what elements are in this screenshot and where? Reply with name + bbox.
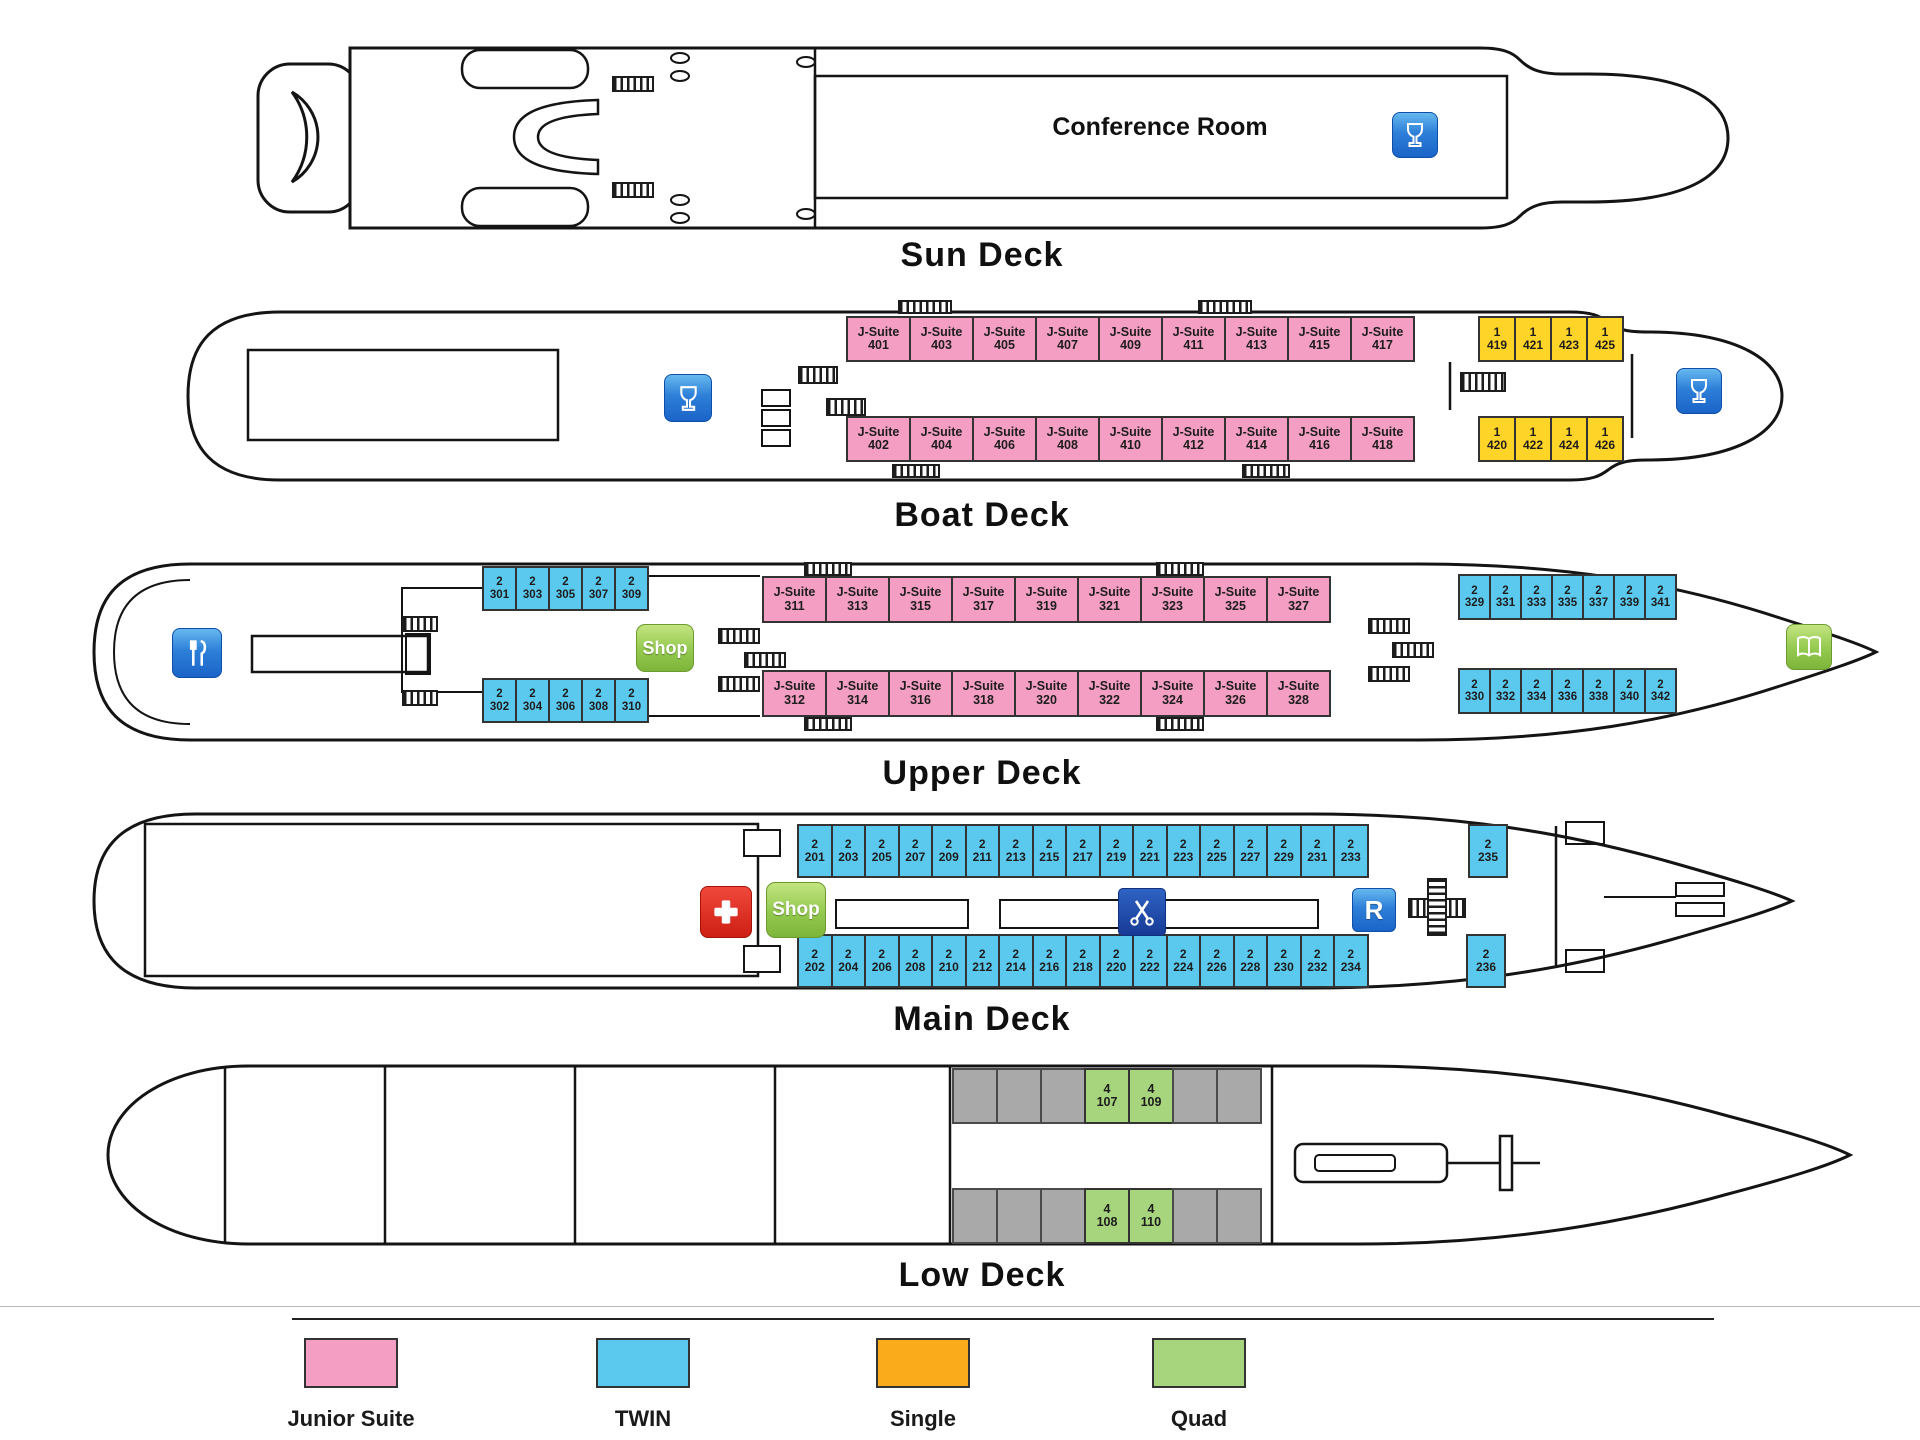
cabin-number: 412 (1183, 439, 1204, 452)
cabin[interactable] (1040, 1188, 1086, 1244)
cabin-number: 314 (847, 694, 868, 707)
cabin[interactable]: 2 233 (1333, 824, 1369, 878)
cabin[interactable]: 2 201 (797, 824, 833, 878)
cabin-number: 337 (1589, 597, 1608, 609)
cabin[interactable]: 2 215 (1032, 824, 1068, 878)
cabin-type: 2 (1564, 585, 1570, 597)
cabin-number: 213 (1006, 851, 1026, 864)
cabin[interactable]: 2 203 (831, 824, 867, 878)
cabin[interactable]: 2 218 (1065, 934, 1101, 988)
cabin-number: 221 (1140, 851, 1160, 864)
cabin[interactable]: J-Suite 313 (825, 576, 890, 623)
restaurant-icon (172, 628, 222, 678)
cabin-number: 328 (1288, 694, 1309, 707)
cabin[interactable]: 2 225 (1199, 824, 1235, 878)
cabin[interactable]: 2 304 (515, 678, 550, 723)
cabin[interactable]: J-Suite 401 (846, 316, 911, 362)
cabin-number: 319 (1036, 600, 1057, 613)
cabin[interactable]: 2 234 (1333, 934, 1369, 988)
cabin[interactable]: 2 332 (1489, 668, 1522, 714)
cabin-235[interactable]: 2 235 (1468, 824, 1508, 878)
cabin[interactable]: 2 339 (1613, 574, 1646, 620)
cabin[interactable]: J-Suite 312 (762, 670, 827, 717)
main-deck-twin-row-bottom: 2 202 2 204 2 206 2 208 2 210 2 212 2 21… (797, 934, 1369, 988)
cabin-number: 331 (1496, 597, 1515, 609)
stairs-icon (1427, 878, 1447, 936)
cabin[interactable]: 2 229 (1266, 824, 1302, 878)
cabin[interactable]: 2 222 (1132, 934, 1168, 988)
library-book-icon (1786, 624, 1832, 670)
cabin[interactable]: 2 224 (1166, 934, 1202, 988)
cabin-type: 2 (562, 576, 568, 588)
cabin-number: 404 (931, 439, 952, 452)
cabin[interactable]: J-Suite 318 (951, 670, 1016, 717)
cabin-number: 207 (905, 851, 925, 864)
cabin[interactable]: 4 109 (1128, 1068, 1174, 1124)
cabin-type: 2 (529, 576, 535, 588)
legend-divider (292, 1318, 1714, 1320)
cabin[interactable]: 1 426 (1586, 416, 1624, 462)
bar-icon (1676, 368, 1722, 414)
cabin-type: J-Suite (900, 586, 942, 599)
cabin[interactable]: 2 219 (1099, 824, 1135, 878)
cabin-number: 322 (1099, 694, 1120, 707)
cabin[interactable]: 2 301 (482, 566, 517, 611)
cabin-type: J-Suite (963, 586, 1005, 599)
cabin[interactable]: 2 308 (581, 678, 616, 723)
cabin-type: J-Suite (1152, 586, 1194, 599)
stairs-icon (612, 182, 654, 198)
cabin[interactable]: 2 334 (1520, 668, 1553, 714)
cabin[interactable]: 2 342 (1644, 668, 1677, 714)
cabin[interactable]: 2 337 (1582, 574, 1615, 620)
upper-deck-twin-fwd-row-top: 2 329 2 331 2 333 2 335 2 337 2 339 2 34… (1458, 574, 1677, 620)
cabin[interactable]: J-Suite 327 (1266, 576, 1331, 623)
cabin-number: 402 (868, 439, 889, 452)
cabin[interactable]: 2 231 (1300, 824, 1336, 878)
cabin[interactable]: 2 341 (1644, 574, 1677, 620)
cabin-type: J-Suite (1026, 586, 1068, 599)
cabin-type: 2 (1471, 679, 1477, 691)
cabin[interactable]: J-Suite 311 (762, 576, 827, 623)
cabin-number: 306 (556, 701, 575, 713)
cabin-number: 308 (589, 701, 608, 713)
stairs-icon (1198, 300, 1252, 314)
stairs-icon (1368, 618, 1410, 634)
cabin[interactable]: 2 211 (965, 824, 1001, 878)
stairs-icon (1368, 666, 1410, 682)
cabin[interactable] (1040, 1068, 1086, 1124)
cabin-number: 413 (1246, 339, 1267, 352)
low-deck-cell-row-bottom: 4 108 4 110 (952, 1188, 1262, 1244)
cabin[interactable]: J-Suite 323 (1140, 576, 1205, 623)
cabin-number: 236 (1476, 961, 1496, 974)
cabin-number: 223 (1173, 851, 1193, 864)
main-deck-label: Main Deck (632, 1000, 1332, 1039)
cabin[interactable]: J-Suite 316 (888, 670, 953, 717)
cabin[interactable]: J-Suite 408 (1035, 416, 1100, 462)
cabin[interactable]: 2 329 (1458, 574, 1491, 620)
cabin[interactable]: 1 425 (1586, 316, 1624, 362)
cabin[interactable] (1216, 1188, 1262, 1244)
cabin-number: 108 (1097, 1216, 1118, 1229)
cabin[interactable]: J-Suite 314 (825, 670, 890, 717)
boat-deck-single-row-top: 1 419 1 421 1 423 1 425 (1478, 316, 1624, 362)
bar-icon (664, 374, 712, 422)
cabin-number: 233 (1341, 851, 1361, 864)
cabin[interactable]: J-Suite 411 (1161, 316, 1226, 362)
cabin[interactable]: 2 216 (1032, 934, 1068, 988)
cabin[interactable]: 2 207 (898, 824, 934, 878)
cabin-number: 214 (1006, 961, 1026, 974)
cabin[interactable]: J-Suite 320 (1014, 670, 1079, 717)
cabin-type: 2 (1657, 679, 1663, 691)
sun-deck-label: Sun Deck (632, 236, 1332, 275)
legend-label: Quad (1171, 1406, 1227, 1432)
shop-label: Shop (643, 638, 688, 659)
cabin[interactable] (996, 1068, 1042, 1124)
cabin-number: 317 (973, 600, 994, 613)
cabin-type: 2 (595, 576, 601, 588)
cabin-number: 232 (1307, 961, 1327, 974)
cabin[interactable]: 2 226 (1199, 934, 1235, 988)
cabin-number: 415 (1309, 339, 1330, 352)
cabin-number: 420 (1487, 439, 1507, 452)
cabin-type: 2 (1502, 585, 1508, 597)
legend-label: Single (890, 1406, 956, 1432)
cabin[interactable]: 2 309 (614, 566, 649, 611)
cabin-type: J-Suite (900, 680, 942, 693)
cabin[interactable]: J-Suite 414 (1224, 416, 1289, 462)
cabin[interactable] (952, 1188, 998, 1244)
cabin[interactable]: 2 338 (1582, 668, 1615, 714)
cabin-number: 421 (1523, 339, 1543, 352)
cabin[interactable]: J-Suite 403 (909, 316, 974, 362)
cabin[interactable]: 1 422 (1514, 416, 1552, 462)
upper-deck-label: Upper Deck (632, 754, 1332, 793)
cabin-number: 414 (1246, 439, 1267, 452)
cabin[interactable] (1216, 1068, 1262, 1124)
boat-deck-jsuite-row-bottom: J-Suite 402 J-Suite 404 J-Suite 406 J-Su… (846, 416, 1415, 462)
cabin[interactable]: 1 421 (1514, 316, 1552, 362)
bar-icon (1392, 112, 1438, 158)
legend-label: Junior Suite (287, 1406, 414, 1432)
cabin[interactable]: J-Suite 315 (888, 576, 953, 623)
cabin-number: 304 (523, 701, 542, 713)
cabin[interactable]: 2 205 (864, 824, 900, 878)
cabin-number: 224 (1173, 961, 1193, 974)
cabin-number: 309 (622, 589, 641, 601)
cabin-number: 340 (1620, 691, 1639, 703)
cabin-number: 209 (939, 851, 959, 864)
stairs-icon (1392, 642, 1434, 658)
cabin-number: 342 (1651, 691, 1670, 703)
cabin-number: 208 (905, 961, 925, 974)
cabin[interactable]: 2 202 (797, 934, 833, 988)
cabin[interactable]: J-Suite 415 (1287, 316, 1352, 362)
cabin-number: 417 (1372, 339, 1393, 352)
cabin[interactable] (996, 1188, 1042, 1244)
stairs-icon (804, 717, 852, 731)
stairs-icon (612, 76, 654, 92)
main-deck-twin-row-top: 2 201 2 203 2 205 2 207 2 209 2 211 2 21… (797, 824, 1369, 878)
cabin-type: 2 (496, 688, 502, 700)
cabin-number: 407 (1057, 339, 1078, 352)
cabin[interactable]: 4 110 (1128, 1188, 1174, 1244)
cabin-number: 320 (1036, 694, 1057, 707)
cabin[interactable]: 4 108 (1084, 1188, 1130, 1244)
cabin[interactable]: J-Suite 405 (972, 316, 1037, 362)
cabin-type: J-Suite (1026, 680, 1068, 693)
cabin[interactable]: 1 419 (1478, 316, 1516, 362)
cabin-number: 409 (1120, 339, 1141, 352)
cabin[interactable]: J-Suite 407 (1035, 316, 1100, 362)
cabin-number: 211 (973, 851, 992, 864)
cabin-number: 418 (1372, 439, 1393, 452)
cabin-236[interactable]: 2 236 (1466, 934, 1506, 988)
cabin[interactable]: 2 213 (998, 824, 1034, 878)
cabin-number: 201 (805, 851, 825, 864)
cabin[interactable]: 2 228 (1233, 934, 1269, 988)
cabin-type: 2 (1626, 679, 1632, 691)
cabin[interactable] (1172, 1188, 1218, 1244)
cabin-type: J-Suite (1215, 680, 1257, 693)
cabin-number: 311 (784, 600, 804, 613)
cabin[interactable]: J-Suite 321 (1077, 576, 1142, 623)
legend-swatch (596, 1338, 690, 1388)
cabin-type: 2 (628, 576, 634, 588)
cabin-type: J-Suite (1278, 680, 1320, 693)
cabin-type: 2 (562, 688, 568, 700)
cabin-number: 228 (1240, 961, 1260, 974)
cabin[interactable]: J-Suite 324 (1140, 670, 1205, 717)
cabin-type: J-Suite (774, 586, 816, 599)
cabin-number: 107 (1097, 1096, 1118, 1109)
cabin[interactable]: J-Suite 402 (846, 416, 911, 462)
cabin[interactable]: J-Suite 328 (1266, 670, 1331, 717)
cabin-number: 338 (1589, 691, 1608, 703)
cabin-number: 315 (910, 600, 931, 613)
cabin-number: 405 (994, 339, 1015, 352)
cabin[interactable]: 2 227 (1233, 824, 1269, 878)
cabin-number: 301 (490, 589, 509, 601)
cabin[interactable]: 1 424 (1550, 416, 1588, 462)
cabin[interactable]: 2 214 (998, 934, 1034, 988)
cabin-number: 231 (1307, 851, 1327, 864)
cabin[interactable]: J-Suite 319 (1014, 576, 1079, 623)
cabin-type: J-Suite (1089, 680, 1131, 693)
low-deck-label: Low Deck (632, 1256, 1332, 1295)
cabin-number: 230 (1274, 961, 1294, 974)
stairs-icon (798, 366, 838, 384)
stairs-icon (718, 628, 760, 644)
cabin-number: 110 (1141, 1216, 1161, 1229)
cabin[interactable]: 2 232 (1300, 934, 1336, 988)
stairs-icon (1242, 464, 1290, 478)
cabin-type: J-Suite (774, 680, 816, 693)
upper-deck-jsuite-row-bottom: J-Suite 312 J-Suite 314 J-Suite 316 J-Su… (762, 670, 1331, 717)
cabin-number: 341 (1651, 597, 1670, 609)
cabin-number: 217 (1073, 851, 1093, 864)
cabin[interactable]: J-Suite 412 (1161, 416, 1226, 462)
cabin[interactable]: J-Suite 404 (909, 416, 974, 462)
cabin-type: J-Suite (1215, 586, 1257, 599)
cabin-number: 215 (1039, 851, 1059, 864)
cabin-type: J-Suite (963, 680, 1005, 693)
cabin[interactable]: 2 336 (1551, 668, 1584, 714)
cabin-number: 312 (784, 694, 805, 707)
cabin-type: 2 (1626, 585, 1632, 597)
cabin[interactable]: 2 204 (831, 934, 867, 988)
cabin-number: 401 (868, 339, 889, 352)
cabin[interactable]: 2 220 (1099, 934, 1135, 988)
legend-swatch (304, 1338, 398, 1388)
legend-item: Quad (1152, 1338, 1246, 1432)
cabin-type: 2 (628, 688, 634, 700)
cabin-type: 2 (496, 576, 502, 588)
reception-icon: R (1352, 888, 1396, 932)
cabin-number: 330 (1465, 691, 1484, 703)
cabin[interactable]: 2 340 (1613, 668, 1646, 714)
boat-deck-jsuite-row-top: J-Suite 401 J-Suite 403 J-Suite 405 J-Su… (846, 316, 1415, 362)
cabin-number: 327 (1288, 600, 1309, 613)
cabin[interactable]: J-Suite 325 (1203, 576, 1268, 623)
cabin-number: 205 (872, 851, 892, 864)
cabin[interactable]: 2 209 (931, 824, 967, 878)
cabin-number: 325 (1225, 600, 1246, 613)
stairs-icon (402, 690, 438, 706)
upper-deck-twin-aft-row-bottom: 2 302 2 304 2 306 2 308 2 310 (482, 678, 649, 723)
cabin-number: 310 (622, 701, 641, 713)
cabin[interactable]: 2 310 (614, 678, 649, 723)
cabin-number: 329 (1465, 597, 1484, 609)
cabin-number: 226 (1207, 961, 1227, 974)
legend-swatch (1152, 1338, 1246, 1388)
cabin-number: 219 (1106, 851, 1126, 864)
cabin[interactable]: J-Suite 317 (951, 576, 1016, 623)
cabin-type: 2 (529, 688, 535, 700)
cabin[interactable]: 2 303 (515, 566, 550, 611)
cabin[interactable]: J-Suite 418 (1350, 416, 1415, 462)
cabin-type: 2 (1595, 679, 1601, 691)
cabin[interactable]: J-Suite 417 (1350, 316, 1415, 362)
stairs-icon (718, 676, 760, 692)
cabin-number: 416 (1309, 439, 1330, 452)
shop-icon: Shop (766, 882, 826, 938)
upper-deck-twin-aft-row-top: 2 301 2 303 2 305 2 307 2 309 (482, 566, 649, 611)
cabin-type: J-Suite (837, 680, 879, 693)
cabin[interactable]: J-Suite 326 (1203, 670, 1268, 717)
cabin[interactable] (1172, 1068, 1218, 1124)
stairs-icon (898, 300, 952, 314)
cabin-type: 2 (1564, 679, 1570, 691)
shop-label: Shop (772, 899, 820, 921)
cabin[interactable]: 2 333 (1520, 574, 1553, 620)
cabin[interactable]: J-Suite 406 (972, 416, 1037, 462)
cabin[interactable]: 1 423 (1550, 316, 1588, 362)
cabin-number: 424 (1559, 439, 1579, 452)
cabin-number: 203 (838, 851, 858, 864)
cabin-number: 410 (1120, 439, 1141, 452)
cabin-number: 423 (1559, 339, 1579, 352)
cabin[interactable]: 2 230 (1266, 934, 1302, 988)
cabin[interactable]: 2 305 (548, 566, 583, 611)
cabin-number: 403 (931, 339, 952, 352)
cabin-number: 426 (1595, 439, 1615, 452)
cabin[interactable]: 2 223 (1166, 824, 1202, 878)
cabin[interactable]: J-Suite 322 (1077, 670, 1142, 717)
reception-label: R (1365, 895, 1384, 926)
cabin-type: 2 (595, 688, 601, 700)
cabin-number: 425 (1595, 339, 1615, 352)
cabin-number: 332 (1496, 691, 1515, 703)
cabin[interactable]: J-Suite 409 (1098, 316, 1163, 362)
stairs-icon (1156, 717, 1204, 731)
legend-label: TWIN (615, 1406, 671, 1432)
cabin[interactable]: 2 331 (1489, 574, 1522, 620)
cabin-type: 2 (1595, 585, 1601, 597)
cabin-number: 408 (1057, 439, 1078, 452)
cabin[interactable]: 2 330 (1458, 668, 1491, 714)
cabin-number: 324 (1162, 694, 1183, 707)
cabin[interactable]: J-Suite 416 (1287, 416, 1352, 462)
upper-deck-jsuite-row-top: J-Suite 311 J-Suite 313 J-Suite 315 J-Su… (762, 576, 1331, 623)
cabin-number: 335 (1558, 597, 1577, 609)
stairs-icon (1156, 562, 1204, 576)
cabin-number: 109 (1141, 1096, 1162, 1109)
cabin-number: 305 (556, 589, 575, 601)
shop-icon: Shop (636, 624, 694, 672)
cabin[interactable]: 1 420 (1478, 416, 1516, 462)
cabin-number: 234 (1341, 961, 1361, 974)
cabin-number: 229 (1274, 851, 1294, 864)
cabin-number: 316 (910, 694, 931, 707)
cabin[interactable]: 2 307 (581, 566, 616, 611)
legend-swatch (876, 1338, 970, 1388)
cabin[interactable]: 2 208 (898, 934, 934, 988)
cabin-number: 326 (1225, 694, 1246, 707)
stairs-icon (1460, 372, 1506, 392)
cabin[interactable]: J-Suite 410 (1098, 416, 1163, 462)
legend-item: Single (876, 1338, 970, 1432)
boat-deck-single-row-bottom: 1 420 1 422 1 424 1 426 (1478, 416, 1624, 462)
cabin-type: 2 (1657, 585, 1663, 597)
cabin-number: 339 (1620, 597, 1639, 609)
cabin-number: 336 (1558, 691, 1577, 703)
cabin-type: 2 (1471, 585, 1477, 597)
cabin[interactable] (952, 1068, 998, 1124)
stairs-icon (402, 616, 438, 632)
cabin-type: J-Suite (1152, 680, 1194, 693)
cabin[interactable]: 2 212 (965, 934, 1001, 988)
legend-item: Junior Suite (304, 1338, 398, 1432)
stairs-icon (826, 398, 866, 416)
cabin-number: 321 (1099, 600, 1120, 613)
cabin-number: 313 (847, 600, 868, 613)
cabin[interactable]: 2 335 (1551, 574, 1584, 620)
cabin[interactable]: 2 217 (1065, 824, 1101, 878)
cabin[interactable]: 4 107 (1084, 1068, 1130, 1124)
cabin[interactable]: 2 210 (931, 934, 967, 988)
cabin[interactable]: 2 221 (1132, 824, 1168, 878)
hairdresser-scissors-icon (1118, 888, 1166, 936)
cabin-number: 222 (1140, 961, 1160, 974)
cabin-number: 216 (1039, 961, 1059, 974)
cabin[interactable]: J-Suite 413 (1224, 316, 1289, 362)
cabin[interactable]: 2 206 (864, 934, 900, 988)
cabin[interactable]: 2 302 (482, 678, 517, 723)
cabin[interactable]: 2 306 (548, 678, 583, 723)
